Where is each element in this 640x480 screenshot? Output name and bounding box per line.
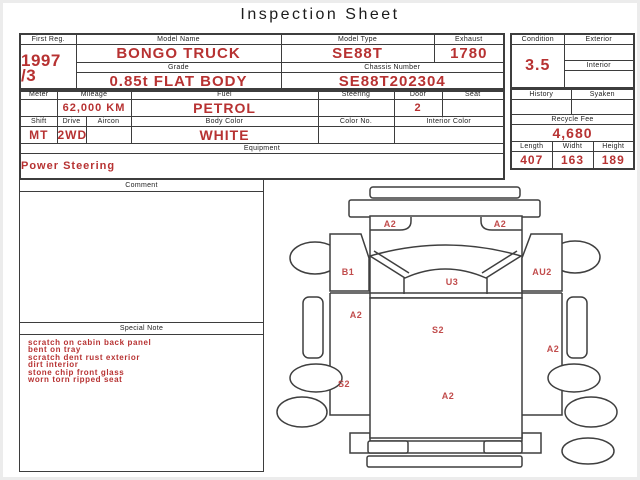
damage-label: A2 [547, 344, 560, 354]
special-note-box-title: Special Note [20, 323, 263, 335]
body-color-value: WHITE [131, 127, 318, 144]
comment-box-title: Comment [20, 180, 263, 192]
meter-value [20, 100, 57, 117]
history-value [511, 100, 571, 115]
first-reg-header: First Reg. [20, 34, 76, 45]
model-name-header: Model Name [76, 34, 281, 45]
interior-color-header: Interior Color [394, 117, 504, 127]
aircon-header: Aircon [86, 117, 131, 127]
left-side-guard [303, 297, 323, 358]
mileage-header: Mileage [57, 89, 131, 100]
fuel-header: Fuel [131, 89, 318, 100]
condition-header: Condition [511, 34, 564, 45]
syaken-value [571, 100, 634, 115]
aircon-value [86, 127, 131, 144]
model-type-value: SE88T [281, 45, 434, 63]
drive-header: Drive [57, 117, 86, 127]
exterior-header: Exterior [564, 34, 634, 45]
color-no-header: Color No. [318, 117, 394, 127]
damage-label: B1 [342, 267, 355, 277]
width-value: 163 [552, 152, 593, 169]
length-value: 407 [511, 152, 552, 169]
model-name-value: BONGO TRUCK [76, 45, 281, 63]
model-type-header: Model Type [281, 34, 434, 45]
width-header: Widht [552, 142, 593, 152]
grade-header: Grade [76, 63, 281, 73]
rear-right-wheel-2 [565, 397, 617, 427]
equipment-value: Power Steering [20, 154, 504, 179]
special-note-list: scratch on cabin back panel bent on tray… [20, 335, 263, 383]
exhaust-header: Exhaust [434, 34, 504, 45]
equipment-header: Equipment [20, 144, 504, 154]
chassis-number-header: Chassis Number [281, 63, 504, 73]
vehicle-id-table: First Reg. Model Name Model Type Exhaust… [19, 33, 505, 92]
interior-header: Interior [564, 61, 634, 71]
fuel-value: PETROL [131, 100, 318, 117]
fee-table: History Syaken Recycle Fee 4,680 Length … [510, 88, 635, 170]
spare-tire [562, 438, 614, 464]
seat-value [442, 100, 504, 117]
condition-value: 3.5 [511, 45, 564, 88]
first-reg-value: 1997 /3 [20, 45, 76, 92]
seat-header: Seat [442, 89, 504, 100]
rear-step-left [368, 441, 408, 453]
comment-box: Comment [19, 179, 264, 323]
rear-step-right [484, 441, 522, 453]
spec-table: Meter Mileage Fuel Steering Door Seat 62… [19, 88, 505, 180]
front-panel [349, 200, 540, 217]
page-title: Inspection Sheet [0, 6, 640, 24]
interior-value [564, 71, 634, 88]
length-header: Length [511, 142, 552, 152]
drive-value: 2WD [57, 127, 86, 144]
shift-value: MT [20, 127, 57, 144]
interior-color-value [394, 127, 504, 144]
damage-label: U3 [446, 277, 459, 287]
door-header: Door [394, 89, 442, 100]
steering-header: Steering [318, 89, 394, 100]
syaken-header: Syaken [571, 89, 634, 100]
right-door-panel [522, 234, 562, 291]
vehicle-diagram: A2 A2 B1 AU2 U3 A2 S2 A2 S2 A2 [268, 178, 640, 480]
height-value: 189 [593, 152, 634, 169]
body-color-header: Body Color [131, 117, 318, 127]
condition-table: Condition Exterior 3.5 Interior [510, 33, 635, 89]
special-note-item: worn torn ripped seat [28, 376, 259, 383]
damage-label: A2 [350, 310, 363, 320]
steering-value [318, 100, 394, 117]
left-door-panel [330, 234, 369, 291]
rear-bumper-bar [367, 456, 522, 467]
color-no-value [318, 127, 394, 144]
inspection-sheet-page: { "page": { "title": "Inspection Sheet" … [0, 0, 640, 480]
special-note-box: Special Note scratch on cabin back panel… [19, 322, 264, 472]
exterior-value [564, 45, 634, 61]
damage-label: S2 [432, 325, 444, 335]
exhaust-value: 1780 [434, 45, 504, 63]
rear-left-wheel-1 [290, 364, 342, 392]
recycle-fee-value: 4,680 [511, 125, 634, 142]
right-side-guard [567, 297, 587, 358]
front-bumper [370, 187, 520, 198]
recycle-fee-header: Recycle Fee [511, 115, 634, 125]
history-header: History [511, 89, 571, 100]
height-header: Height [593, 142, 634, 152]
damage-label: A2 [384, 219, 397, 229]
damage-label: A2 [442, 391, 455, 401]
meter-header: Meter [20, 89, 57, 100]
rear-left-wheel-2 [277, 397, 327, 427]
mileage-value: 62,000 KM [57, 100, 131, 117]
cargo-bed [370, 298, 522, 438]
door-value: 2 [394, 100, 442, 117]
rear-right-wheel-1 [548, 364, 600, 392]
damage-label: A2 [494, 219, 507, 229]
damage-label: S2 [338, 379, 350, 389]
right-bed-rail [522, 293, 562, 415]
shift-header: Shift [20, 117, 57, 127]
damage-label: AU2 [532, 267, 552, 277]
